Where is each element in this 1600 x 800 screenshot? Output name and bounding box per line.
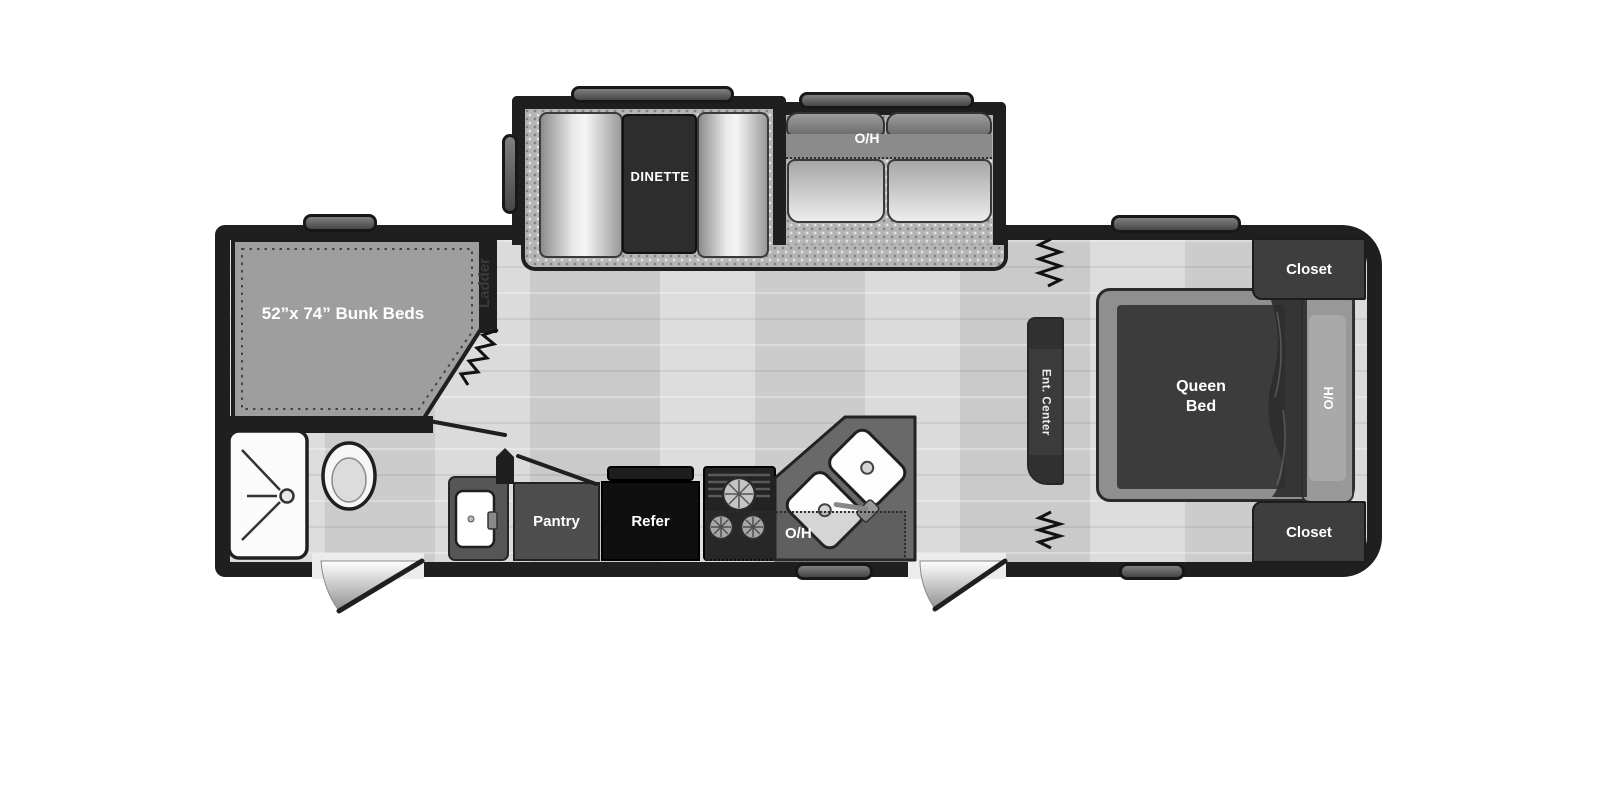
kitchen-overhead-cabinet-outline: O/H (705, 511, 906, 561)
dinette-table (622, 114, 697, 254)
entertainment-center-top (1029, 319, 1062, 349)
floorplan-diagram: Pantry Refer O/H Ent. Center Queen Bed O… (0, 0, 1600, 800)
refrigerator-vent (607, 466, 694, 481)
entry-door-opening (908, 553, 1006, 579)
window-icon (571, 86, 734, 103)
dinette-label: DINETTE (610, 169, 710, 184)
sofa-backrest-right (886, 112, 992, 136)
bunk-beds-label: 52”x 74” Bunk Beds (233, 304, 453, 324)
refrigerator: Refer (601, 481, 700, 561)
sofa-seat-right (887, 159, 992, 223)
dinette-bench-right (697, 112, 769, 258)
refrigerator-label: Refer (631, 513, 669, 530)
entertainment-center-bottom (1029, 455, 1062, 483)
window-icon (502, 134, 518, 214)
window-icon (1119, 563, 1185, 580)
entertainment-center-label: Ent. Center (1040, 369, 1052, 436)
entry-door-opening (312, 553, 424, 579)
kitchen-overhead-label: O/H (785, 525, 812, 542)
dinette-bench-left (539, 112, 623, 258)
ladder-label: Ladder (476, 238, 502, 328)
pantry-cabinet: Pantry (513, 482, 600, 561)
sofa-seat-left (787, 159, 885, 223)
entertainment-center-body: Ent. Center (1029, 349, 1062, 455)
closet-top-label: Closet (1286, 261, 1332, 278)
window-icon (303, 214, 377, 232)
window-icon (799, 92, 974, 109)
window-icon (1111, 215, 1241, 233)
bedroom-overhead-label: O/H (1315, 367, 1341, 429)
queen-bed-mattress: Queen Bed (1117, 305, 1285, 489)
bathroom-vanity (448, 476, 509, 561)
closet-top: Closet (1252, 238, 1366, 300)
entertainment-center: Ent. Center (1027, 317, 1064, 485)
closet-bottom-label: Closet (1286, 524, 1332, 541)
pantry-label: Pantry (533, 513, 580, 530)
closet-bottom: Closet (1252, 501, 1366, 563)
sofa-overhead-label: O/H (837, 130, 897, 146)
window-icon (795, 563, 873, 580)
queen-bed-label: Queen Bed (1161, 377, 1241, 417)
